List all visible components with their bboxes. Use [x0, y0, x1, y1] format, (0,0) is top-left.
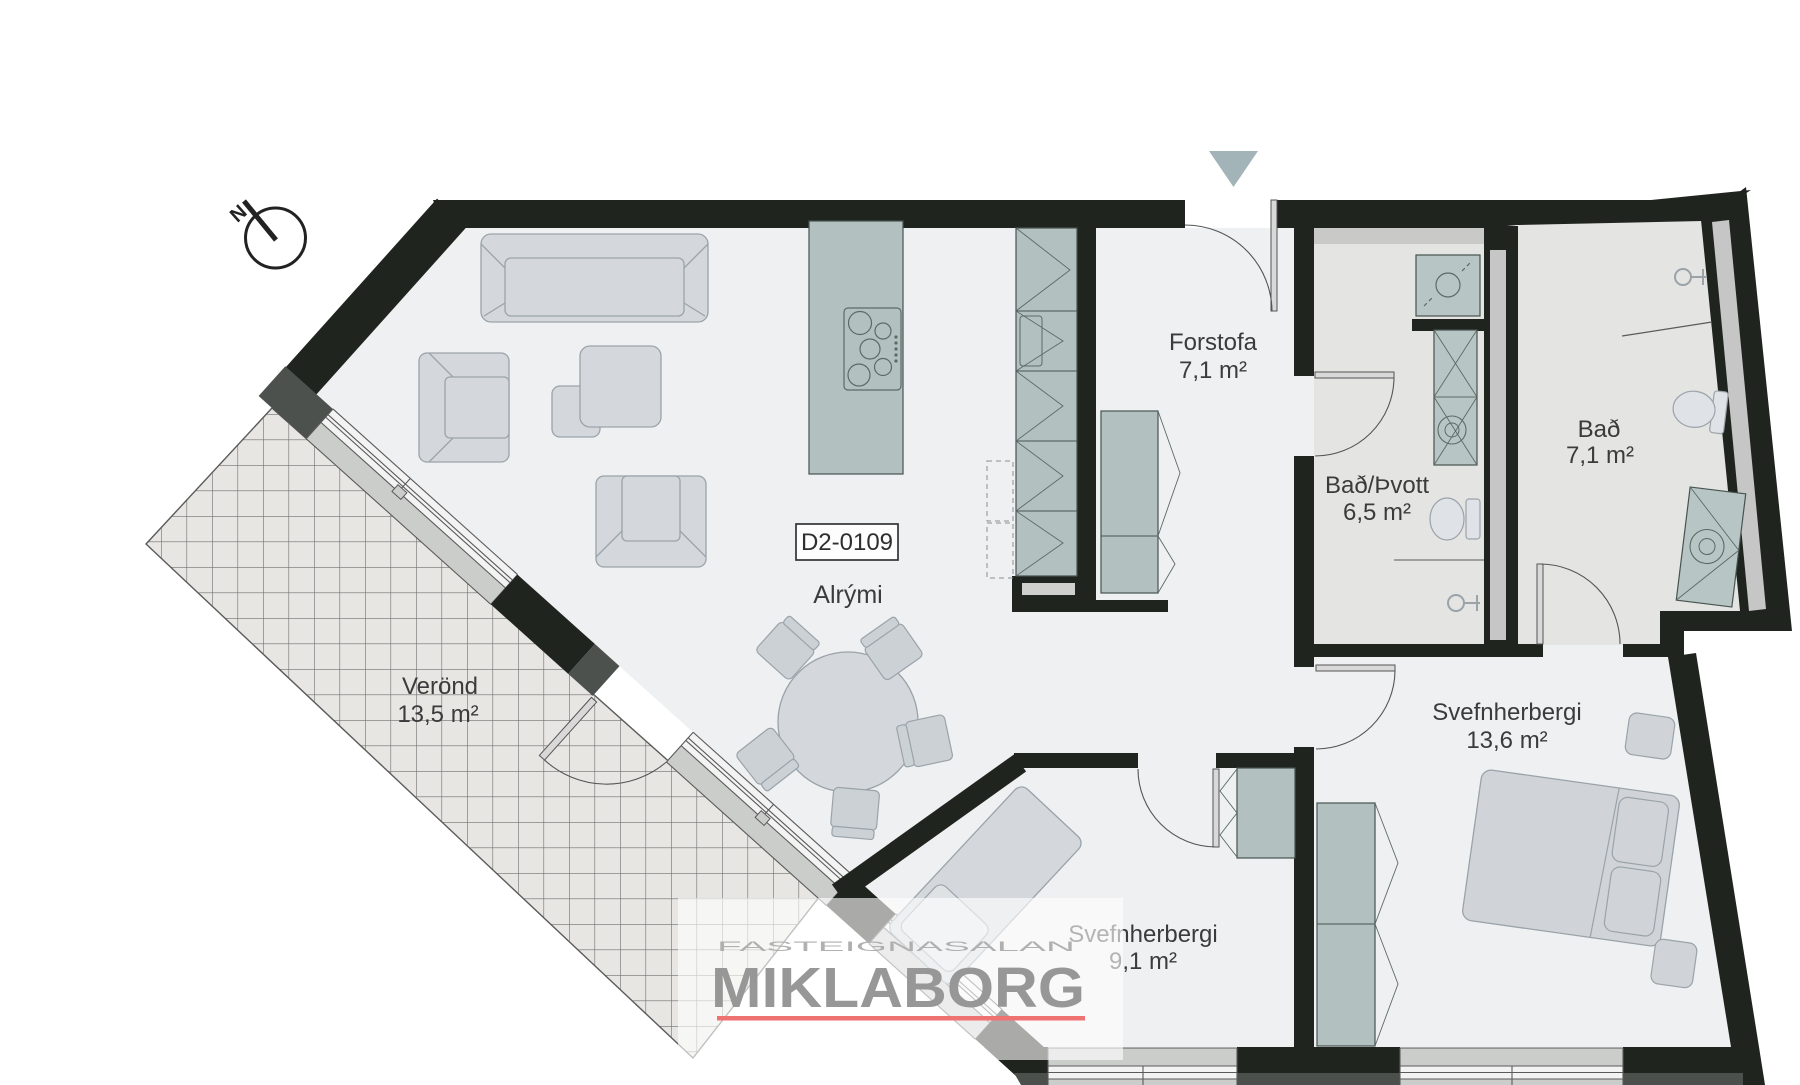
svg-text:Forstofa: Forstofa — [1169, 329, 1258, 356]
svg-text:6,5 m²: 6,5 m² — [1343, 499, 1411, 526]
svg-text:FASTEIGNASALAN: FASTEIGNASALAN — [717, 938, 1075, 954]
svg-text:Bað/Þvott: Bað/Þvott — [1325, 472, 1429, 499]
svg-text:MIKLABORG: MIKLABORG — [711, 956, 1085, 1020]
svg-text:13,6 m²: 13,6 m² — [1466, 727, 1547, 754]
svg-text:Svefnherbergi: Svefnherbergi — [1432, 699, 1581, 726]
svg-text:7,1 m²: 7,1 m² — [1179, 357, 1247, 384]
svg-text:D2-0109: D2-0109 — [801, 529, 893, 556]
svg-text:7,1 m²: 7,1 m² — [1566, 442, 1634, 469]
svg-text:Verönd: Verönd — [402, 673, 478, 700]
svg-text:13,5 m²: 13,5 m² — [397, 701, 478, 728]
svg-text:Alrými: Alrými — [813, 581, 882, 609]
svg-text:Bað: Bað — [1578, 416, 1621, 443]
